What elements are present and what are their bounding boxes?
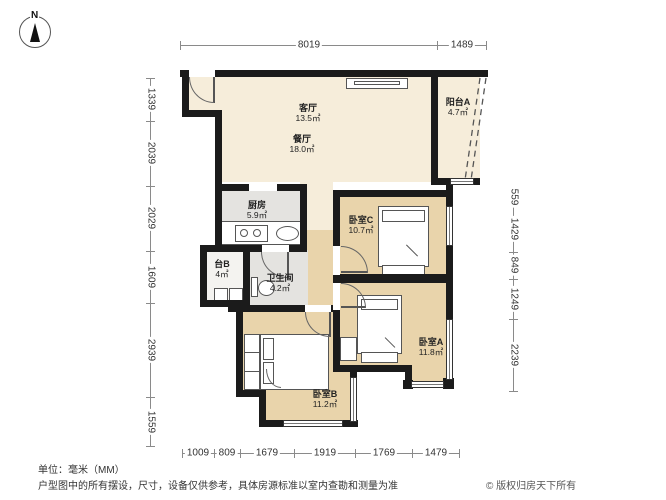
dim-tick xyxy=(180,41,181,50)
wardrobe-divider xyxy=(244,352,260,353)
door-opening xyxy=(262,245,289,252)
room-area: 4.7㎡ xyxy=(446,107,471,117)
disclaimer-text: 户型图中的所有摆设，尺寸，设备仅供参考，具体房源标准以室内查勘和测量为准 xyxy=(38,477,398,492)
dim-value: 2939 xyxy=(146,337,157,363)
bed-pillow xyxy=(382,210,425,222)
nightstand xyxy=(340,337,357,361)
dim-value: 1609 xyxy=(146,264,157,290)
room-label-bathroom: 卫生间 4.2㎡ xyxy=(266,273,293,293)
dim-tick xyxy=(146,121,155,122)
dim-tick xyxy=(146,78,155,79)
wall xyxy=(431,77,438,181)
wall xyxy=(446,244,453,276)
dim-value: 1429 xyxy=(509,216,520,242)
room-label-balcony-b: 台B 4㎡ xyxy=(214,259,230,279)
dim-tick xyxy=(146,397,155,398)
dim-value: 2039 xyxy=(146,140,157,166)
bed-pillow xyxy=(361,299,398,310)
room-name: 卫生间 xyxy=(266,273,293,283)
toilet-tank xyxy=(251,277,258,297)
dim-value: 809 xyxy=(217,448,238,459)
door-opening xyxy=(249,184,277,191)
wall xyxy=(333,274,453,283)
room-label-kitchen: 厨房 5.9㎡ xyxy=(247,200,267,220)
window xyxy=(411,381,444,388)
dim-value: 1249 xyxy=(509,286,520,312)
bed-foot-bench xyxy=(361,352,398,363)
tv-unit xyxy=(354,81,400,85)
room-name: 卧室A xyxy=(419,337,444,347)
room-name: 台B xyxy=(214,259,230,269)
room-name: 餐厅 xyxy=(289,134,314,144)
dim-value: 1489 xyxy=(449,40,475,51)
window xyxy=(350,377,357,422)
dim-tick xyxy=(509,391,518,392)
wardrobe-divider xyxy=(244,371,260,372)
room-name: 卧室C xyxy=(348,215,373,225)
dim-tick xyxy=(509,319,518,320)
dim-tick xyxy=(294,449,295,458)
dim-value: 1919 xyxy=(312,448,338,459)
room-label-living: 客厅 13.5㎡ xyxy=(295,103,320,123)
dim-value: 849 xyxy=(509,255,520,276)
wall xyxy=(333,190,340,248)
dim-tick xyxy=(240,449,241,458)
dim-tick xyxy=(459,449,460,458)
room-area: 5.9㎡ xyxy=(247,210,267,220)
dim-tick xyxy=(146,303,155,304)
dim-line xyxy=(180,45,487,46)
dim-tick xyxy=(437,41,438,50)
wall xyxy=(243,250,250,307)
window xyxy=(283,420,343,427)
room-area: 18.0㎡ xyxy=(289,144,314,154)
dim-tick xyxy=(412,449,413,458)
room-name: 阳台A xyxy=(446,97,471,107)
dim-tick xyxy=(214,449,215,458)
room-label-bedroom-b: 卧室B 11.2㎡ xyxy=(313,389,338,409)
balcony-railing-dashes xyxy=(452,72,488,187)
stove-burner xyxy=(240,229,248,237)
wall xyxy=(333,365,412,372)
room-name: 客厅 xyxy=(295,103,320,113)
door-opening xyxy=(189,70,215,77)
dim-tick xyxy=(509,279,518,280)
wall xyxy=(180,70,488,77)
bed-pillow xyxy=(263,338,274,360)
stove-burner xyxy=(253,229,261,237)
room-area: 11.8㎡ xyxy=(419,347,444,357)
dim-tick xyxy=(355,449,356,458)
floor-plan-page: { "compass": { "label": "N" }, "rooms": … xyxy=(0,0,666,500)
floor-outside-notch xyxy=(182,117,215,191)
room-area: 11.2㎡ xyxy=(313,399,338,409)
dim-value: 1559 xyxy=(146,409,157,435)
wall xyxy=(446,185,453,208)
door-opening xyxy=(333,246,340,275)
room-label-dining: 餐厅 18.0㎡ xyxy=(289,134,314,154)
wall xyxy=(446,283,453,321)
window xyxy=(446,206,453,246)
dim-value: 1009 xyxy=(185,448,211,459)
floor-hallway xyxy=(305,230,333,310)
door-opening xyxy=(333,283,340,310)
dim-tick xyxy=(486,41,487,50)
wall xyxy=(215,110,222,191)
dim-value: 2029 xyxy=(146,205,157,231)
room-area: 4.2㎡ xyxy=(266,283,293,293)
dim-value: 1339 xyxy=(146,86,157,112)
floor-living-dining xyxy=(187,75,433,182)
room-label-bedroom-c: 卧室C 10.7㎡ xyxy=(348,215,373,235)
wardrobe xyxy=(244,334,260,390)
dim-tick xyxy=(182,449,183,458)
room-name: 厨房 xyxy=(247,200,267,210)
dim-tick xyxy=(509,252,518,253)
north-arrow-icon xyxy=(30,23,40,42)
wall xyxy=(333,190,453,197)
unit-note: 单位：毫米（MM） xyxy=(38,461,125,476)
dim-value: 2239 xyxy=(509,342,520,368)
compass-north-label: N xyxy=(30,10,39,21)
dim-value: 1479 xyxy=(423,448,449,459)
wall xyxy=(300,184,307,252)
room-name: 卧室B xyxy=(313,389,338,399)
dim-value: 1679 xyxy=(254,448,280,459)
room-area: 4㎡ xyxy=(214,269,230,279)
wall xyxy=(215,184,222,250)
room-area: 10.7㎡ xyxy=(348,225,373,235)
room-label-bedroom-a: 卧室A 11.8㎡ xyxy=(419,337,444,357)
kitchen-sink xyxy=(276,226,299,241)
window xyxy=(446,319,453,380)
room-area: 13.5㎡ xyxy=(295,113,320,123)
dim-value: 559 xyxy=(509,187,520,208)
copyright-text: © 版权归房天下所有 xyxy=(486,477,576,492)
floor-bedroom-a-nook xyxy=(410,365,447,382)
dim-value: 8019 xyxy=(296,40,322,51)
dim-line xyxy=(150,78,151,447)
wall xyxy=(333,309,340,372)
wall xyxy=(236,312,243,397)
door-opening xyxy=(305,305,331,312)
dim-tick xyxy=(146,446,155,447)
wall xyxy=(200,245,307,252)
room-label-balcony-a: 阳台A 4.7㎡ xyxy=(446,97,471,117)
dim-tick xyxy=(146,186,155,187)
wall xyxy=(200,245,207,307)
dim-value: 1769 xyxy=(371,448,397,459)
dim-tick xyxy=(146,251,155,252)
